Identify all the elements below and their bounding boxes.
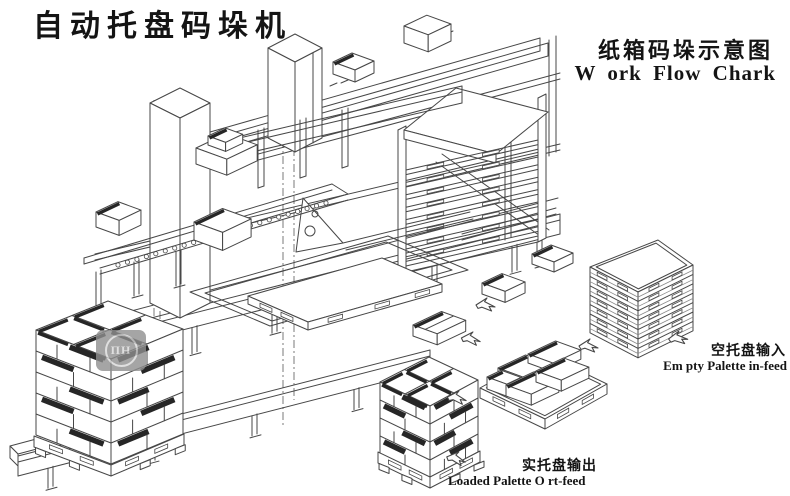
loaded-pallet-stack-left — [34, 301, 185, 476]
label-loaded-pallet-cn: 实托盘输出 — [522, 455, 597, 475]
single-layer-pallet — [480, 341, 607, 429]
label-empty-pallet-en: Em pty Palette in-feed — [663, 358, 787, 374]
page-title: 自动托盘码垛机 — [33, 1, 292, 45]
subtitle-en: W ork Flow Chark — [574, 61, 776, 86]
loaded-pallet-stack-center — [378, 357, 484, 488]
carton-boxes — [413, 245, 573, 345]
flow-arrow-icon — [461, 331, 481, 346]
lift-platform — [190, 236, 468, 330]
flow-arrow-icon — [476, 298, 495, 311]
gantry-tower — [268, 34, 322, 152]
label-empty-pallet-cn: 空托盘输入 — [711, 340, 786, 360]
gantry-column — [150, 88, 210, 318]
watermark-circle: ПН — [105, 334, 138, 367]
watermark-logo: ПН — [96, 330, 146, 371]
watermark-text: ПН — [111, 343, 132, 358]
flow-arrow-icon — [579, 339, 598, 352]
label-loaded-pallet-en: Loaded Palette O rt-feed — [448, 473, 586, 489]
pallet-magazine — [398, 88, 548, 300]
workflow-diagram: ПН 自动托盘码垛机 纸箱码垛示意图 W ork Flow Chark 空托盘输… — [0, 0, 790, 496]
